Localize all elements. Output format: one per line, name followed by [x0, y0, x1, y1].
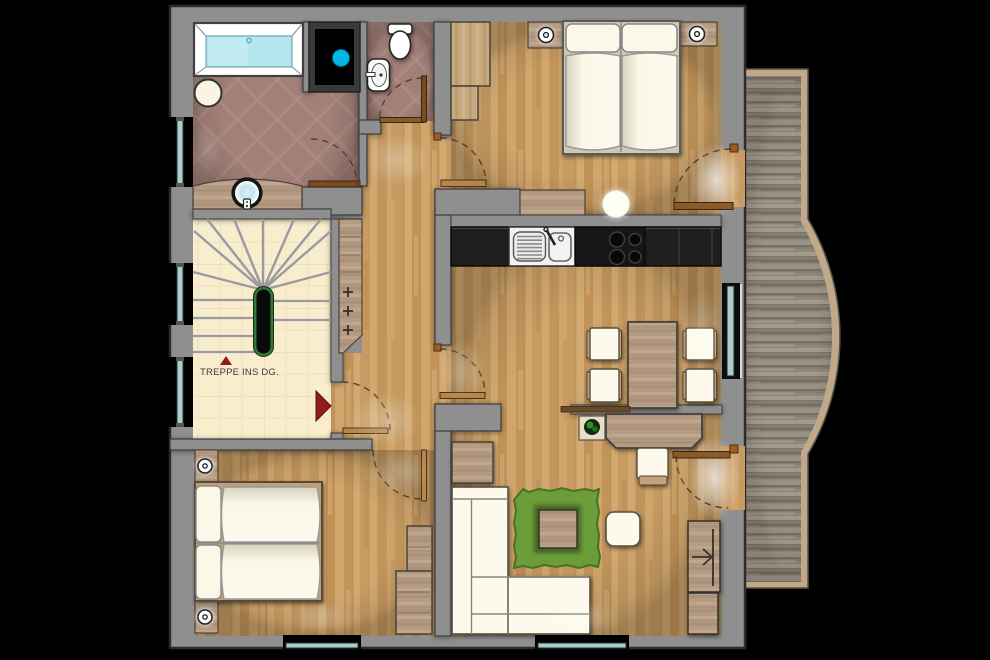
svg-text:TREPPE INS DG.: TREPPE INS DG. [200, 367, 279, 378]
